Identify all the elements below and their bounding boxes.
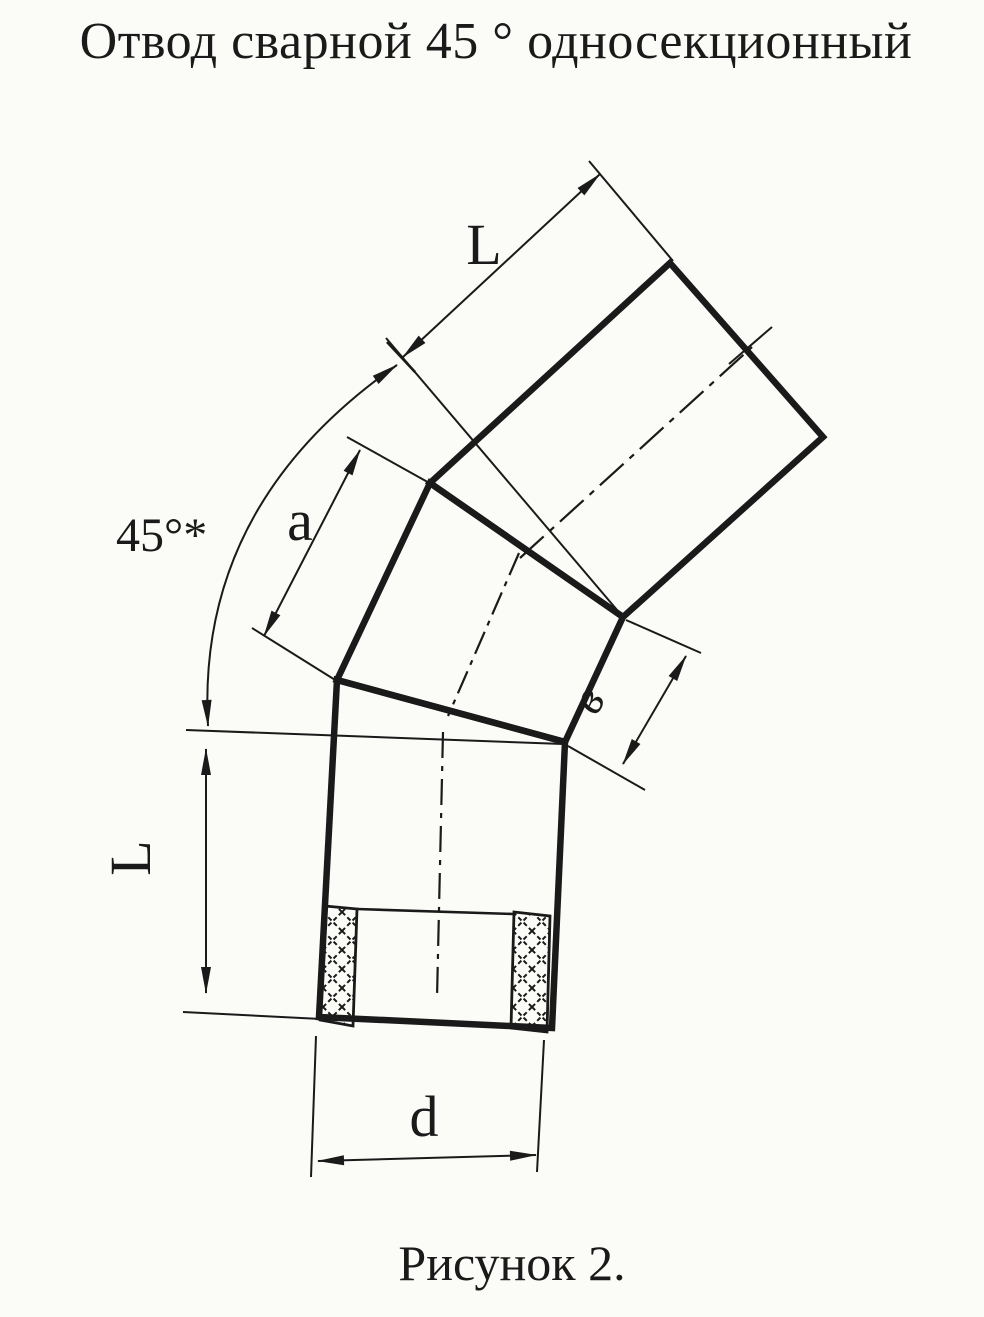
label-d: d	[410, 1084, 439, 1149]
elbow-technical-drawing: L 45°* a в L	[0, 0, 984, 1317]
label-v: в	[560, 677, 616, 723]
extension-line-L-left-top	[186, 730, 563, 744]
label-L-left: L	[98, 840, 163, 875]
dimension-d: d	[311, 1036, 544, 1177]
extension-line-d-left	[311, 1036, 316, 1177]
dimension-line-d	[318, 1155, 536, 1161]
scanned-page: Отвод сварной 45 ° односекционный	[0, 0, 984, 1317]
centerline-bottom-section	[437, 732, 443, 998]
centerline-top-section	[520, 347, 752, 558]
oblique-tick	[387, 342, 415, 372]
label-angle: 45°*	[116, 509, 207, 562]
label-L-top: L	[466, 212, 501, 277]
dimension-angle-45: 45°*	[116, 365, 397, 726]
extension-line-L-left-bottom	[183, 1012, 321, 1019]
extension-line-a-top	[347, 437, 433, 485]
socket-wall-left-hatch	[320, 906, 357, 1026]
dimension-line-v	[623, 656, 686, 764]
figure-caption: Рисунок 2.	[40, 1234, 984, 1292]
pipe-sections	[319, 263, 823, 1028]
extension-line-a-bottom	[252, 628, 340, 683]
extension-line-v-bottom	[568, 746, 645, 790]
socket-coupling	[320, 906, 550, 1032]
extension-line-d-right	[537, 1040, 544, 1172]
top-pipe-section	[430, 263, 823, 617]
label-a: a	[287, 488, 313, 553]
extension-line-from-pipe-end-corner	[589, 161, 673, 261]
dimension-v: в	[560, 620, 701, 790]
centerline-middle-section	[448, 553, 519, 716]
dimension-a: a	[252, 437, 433, 683]
socket-top-edge-line	[357, 909, 513, 914]
socket-wall-right-hatch	[511, 912, 550, 1032]
extension-line-v-top	[626, 620, 701, 653]
